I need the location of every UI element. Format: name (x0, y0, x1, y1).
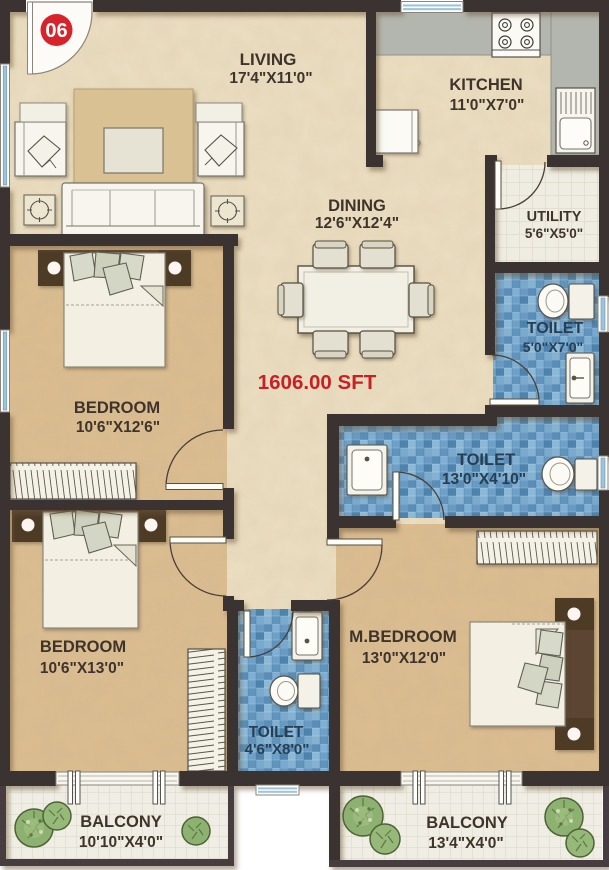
svg-text:4'6"X8'0": 4'6"X8'0" (245, 741, 310, 758)
svg-text:10'6"X12'6": 10'6"X12'6" (76, 419, 160, 436)
svg-text:13'4"X4'0": 13'4"X4'0" (428, 835, 504, 852)
svg-text:1606.00 SFT: 1606.00 SFT (258, 371, 377, 394)
svg-text:17'4"X11'0": 17'4"X11'0" (229, 70, 312, 87)
svg-text:BEDROOM: BEDROOM (40, 638, 126, 656)
svg-text:13'0"X12'0": 13'0"X12'0" (362, 650, 446, 667)
svg-text:DINING: DINING (328, 197, 386, 215)
svg-text:TOILET: TOILET (527, 320, 584, 337)
svg-text:BEDROOM: BEDROOM (74, 399, 160, 417)
svg-text:11'0"X7'0": 11'0"X7'0" (450, 97, 525, 114)
svg-text:06: 06 (45, 20, 67, 42)
svg-text:12'6"X12'4": 12'6"X12'4" (315, 215, 399, 232)
svg-text:LIVING: LIVING (240, 50, 297, 69)
svg-text:13'0"X4'10": 13'0"X4'10" (442, 471, 526, 488)
svg-text:5'0"X7'0": 5'0"X7'0" (523, 339, 583, 355)
svg-text:TOILET: TOILET (249, 724, 304, 741)
svg-text:BALCONY: BALCONY (80, 813, 162, 831)
svg-text:KITCHEN: KITCHEN (449, 76, 522, 94)
svg-text:10'10"X4'0": 10'10"X4'0" (79, 834, 163, 851)
svg-text:M.BEDROOM: M.BEDROOM (349, 627, 457, 646)
svg-text:BALCONY: BALCONY (426, 814, 508, 832)
svg-text:UTILITY: UTILITY (527, 209, 582, 225)
svg-text:5'6"X5'0": 5'6"X5'0" (525, 226, 583, 241)
svg-text:10'6"X13'0": 10'6"X13'0" (40, 660, 124, 677)
svg-text:TOILET: TOILET (457, 451, 515, 469)
